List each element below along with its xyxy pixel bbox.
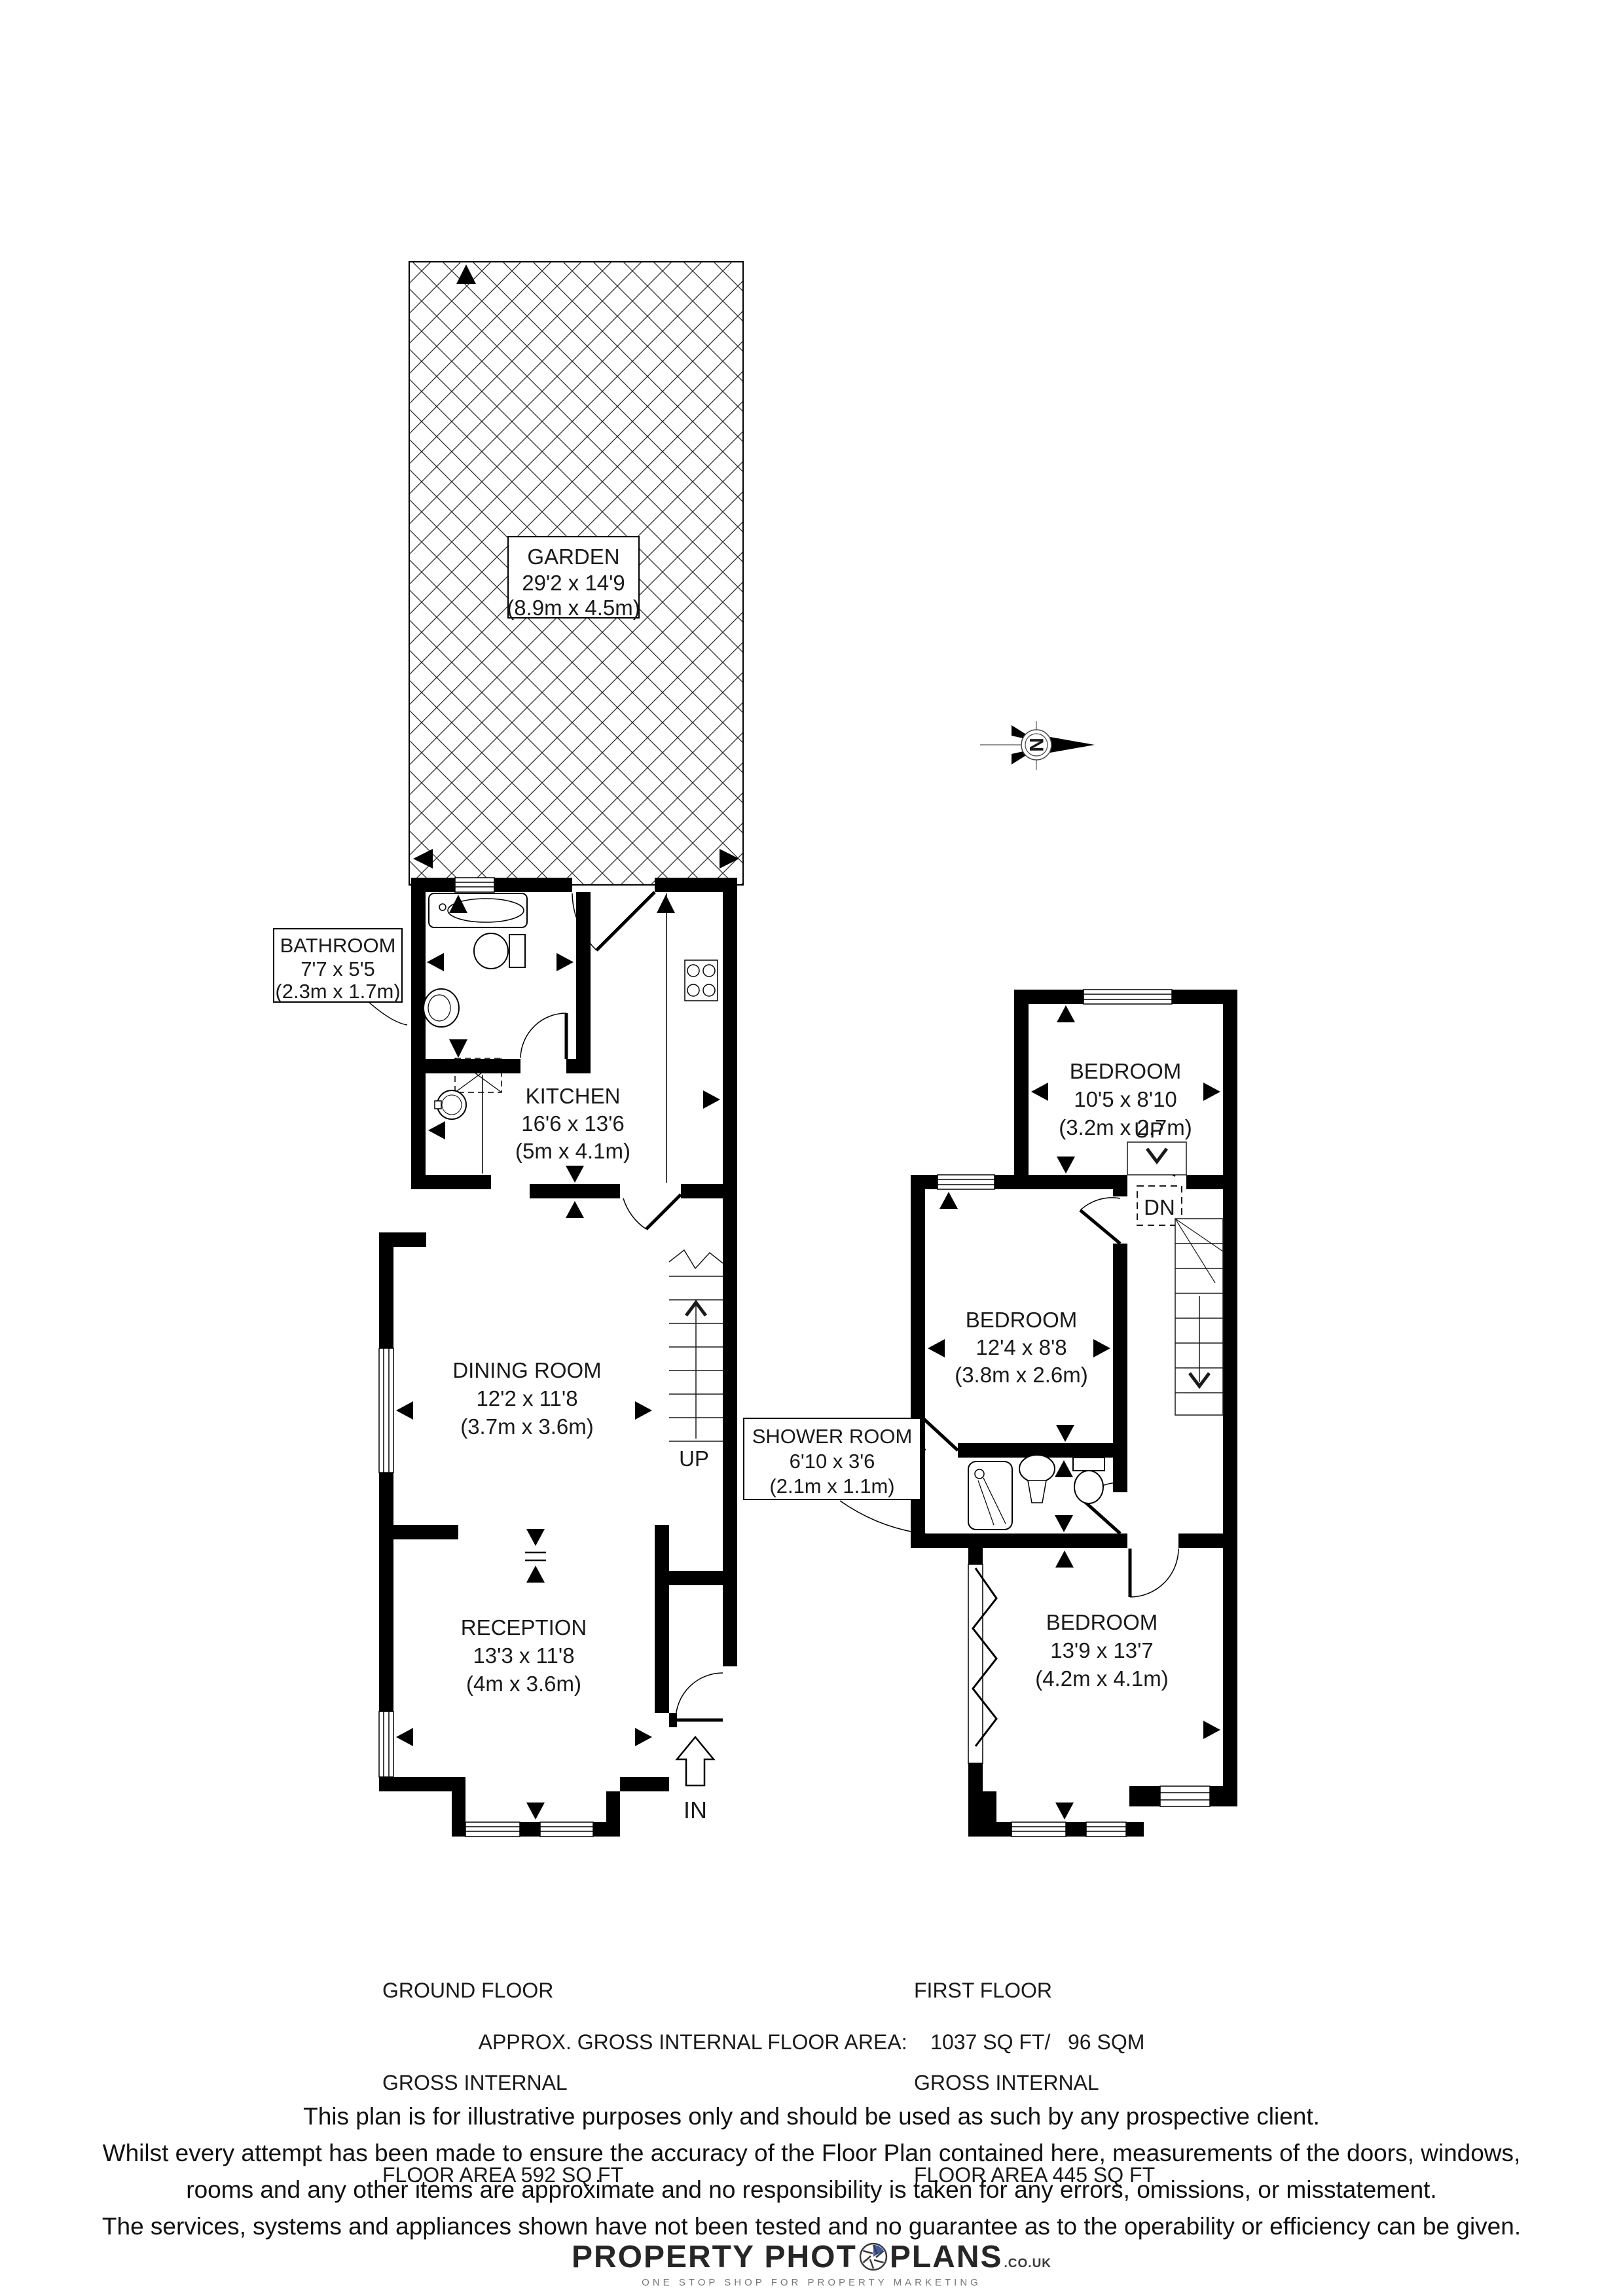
svg-text:13'9 x 13'7: 13'9 x 13'7 xyxy=(1050,1638,1154,1662)
first-floor-line1: FIRST FLOOR xyxy=(914,1975,1155,2006)
svg-text:(2.1m x 1.1m): (2.1m x 1.1m) xyxy=(769,1475,894,1498)
window-icon xyxy=(1084,990,1172,1004)
svg-text:(5m x 4.1m): (5m x 4.1m) xyxy=(515,1139,630,1163)
svg-text:BEDROOM: BEDROOM xyxy=(1070,1059,1182,1083)
logo-domain: .CO.UK xyxy=(1004,2257,1052,2271)
hob-icon xyxy=(685,960,718,1001)
svg-text:DINING ROOM: DINING ROOM xyxy=(452,1358,601,1382)
north-label: N xyxy=(1025,738,1047,752)
stairs-up-label: UP xyxy=(679,1446,709,1471)
garden-name: GARDEN xyxy=(527,545,619,569)
window-icon xyxy=(379,1712,393,1777)
ground-floor-line1: GROUND FLOOR xyxy=(382,1975,623,2006)
garden-size-metric: (8.9m x 4.5m) xyxy=(507,596,640,620)
in-label: IN xyxy=(684,1797,707,1823)
entrance-marker: IN xyxy=(677,1737,714,1823)
kitchen-label: KITCHEN 16'6 x 13'6 (5m x 4.1m) xyxy=(515,1084,630,1163)
door-icon xyxy=(623,1194,681,1229)
window-icon xyxy=(938,1175,994,1189)
svg-text:RECEPTION: RECEPTION xyxy=(461,1615,587,1640)
washer-icon xyxy=(435,1090,466,1119)
door-icon xyxy=(1080,1198,1120,1244)
bedroom-rear-label: BEDROOM 10'5 x 8'10 (3.2m x 2.7m) xyxy=(1059,1059,1192,1139)
wardrobe-wall xyxy=(968,1564,996,1763)
svg-text:BEDROOM: BEDROOM xyxy=(966,1308,1078,1332)
svg-text:(3.2m x 2.7m): (3.2m x 2.7m) xyxy=(1059,1115,1192,1139)
floorplan-page: GARDEN 29'2 x 14'9 (8.9m x 4.5m) xyxy=(0,0,1623,2296)
property-photo-plans-logo: PROPERTY PHOT PLANS.CO.UK ONE STOP SHOP … xyxy=(0,2238,1623,2288)
bathroom-label: BATHROOM 7'7 x 5'5 (2.3m x 1.7m) xyxy=(274,929,407,1025)
reception-label: RECEPTION 13'3 x 11'8 (4m x 3.6m) xyxy=(461,1615,587,1696)
logo-brand-right: PLANS xyxy=(890,2239,1003,2275)
bedroom-front-label: BEDROOM 13'9 x 13'7 (4.2m x 4.1m) xyxy=(1035,1610,1169,1691)
toilet-icon xyxy=(1073,1458,1104,1503)
svg-text:12'2 x 11'8: 12'2 x 11'8 xyxy=(476,1386,577,1410)
door-icon xyxy=(920,1418,958,1450)
window-icon xyxy=(455,878,494,892)
disclaimer-line: This plan is for illustrative purposes o… xyxy=(0,2098,1623,2135)
sink-icon xyxy=(1019,1455,1055,1503)
in-arrow-icon xyxy=(677,1737,714,1785)
entrance-door-icon xyxy=(676,1673,723,1720)
ground-floor-stairs: UP xyxy=(669,1250,723,1471)
svg-text:6'10 x 3'6: 6'10 x 3'6 xyxy=(790,1450,875,1473)
compass-icon: N xyxy=(980,721,1095,770)
svg-text:16'6 x 13'6: 16'6 x 13'6 xyxy=(521,1111,625,1136)
garden-area: GARDEN 29'2 x 14'9 (8.9m x 4.5m) xyxy=(409,262,743,885)
window-icon xyxy=(1160,1786,1210,1806)
first-floor-stairs: UP DN xyxy=(1127,1118,1223,1415)
svg-text:SHOWER ROOM: SHOWER ROOM xyxy=(752,1425,913,1448)
logo-tagline: ONE STOP SHOP FOR PROPERTY MARKETING xyxy=(0,2277,1623,2288)
floorplan-canvas: GARDEN 29'2 x 14'9 (8.9m x 4.5m) xyxy=(0,0,1623,2296)
logo-brand-left: PROPERTY PHOT xyxy=(572,2239,857,2275)
svg-text:13'3 x 11'8: 13'3 x 11'8 xyxy=(473,1643,574,1668)
dining-room-label: DINING ROOM 12'2 x 11'8 (3.7m x 3.6m) xyxy=(452,1358,601,1439)
svg-text:(3.7m x 3.6m): (3.7m x 3.6m) xyxy=(460,1414,594,1439)
svg-text:7'7 x 5'5: 7'7 x 5'5 xyxy=(301,958,375,980)
svg-text:(3.8m x 2.6m): (3.8m x 2.6m) xyxy=(955,1363,1088,1387)
sink-icon xyxy=(424,989,459,1027)
camera-shutter-icon xyxy=(859,2242,888,2271)
shower-room-label: SHOWER ROOM 6'10 x 3'6 (2.1m x 1.1m) xyxy=(744,1418,936,1535)
bathtub-icon xyxy=(429,893,527,927)
door-icon xyxy=(520,1013,566,1059)
bedroom-middle-label: BEDROOM 12'4 x 8'8 (3.8m x 2.6m) xyxy=(955,1308,1088,1387)
svg-text:KITCHEN: KITCHEN xyxy=(526,1084,621,1108)
ground-floor-line2: GROSS INTERNAL xyxy=(382,2068,623,2098)
svg-text:12'4 x 8'8: 12'4 x 8'8 xyxy=(976,1335,1067,1359)
svg-text:(2.3m x 1.7m): (2.3m x 1.7m) xyxy=(275,980,400,1003)
stairs-down-label: DN xyxy=(1144,1195,1175,1219)
svg-text:(4m x 3.6m): (4m x 3.6m) xyxy=(466,1672,581,1696)
first-floor-line2: GROSS INTERNAL xyxy=(914,2068,1155,2098)
svg-text:BATHROOM: BATHROOM xyxy=(280,934,396,957)
svg-text:10'5 x 8'10: 10'5 x 8'10 xyxy=(1074,1087,1177,1111)
disclaimer-text: This plan is for illustrative purposes o… xyxy=(0,2098,1623,2245)
toilet-icon xyxy=(474,933,525,969)
disclaimer-line: rooms and any other items are approximat… xyxy=(0,2172,1623,2208)
shower-tray-icon xyxy=(968,1462,1012,1530)
disclaimer-line: Whilst every attempt has been made to en… xyxy=(0,2135,1623,2172)
garden-size-imperial: 29'2 x 14'9 xyxy=(522,571,625,595)
first-floor-fixtures xyxy=(968,1455,1104,1530)
svg-text:BEDROOM: BEDROOM xyxy=(1046,1610,1158,1634)
total-area-line: APPROX. GROSS INTERNAL FLOOR AREA: 1037 … xyxy=(0,2030,1623,2054)
window-icon xyxy=(379,1348,393,1473)
door-icon xyxy=(1130,1549,1178,1597)
svg-text:(4.2m x 4.1m): (4.2m x 4.1m) xyxy=(1035,1666,1169,1691)
